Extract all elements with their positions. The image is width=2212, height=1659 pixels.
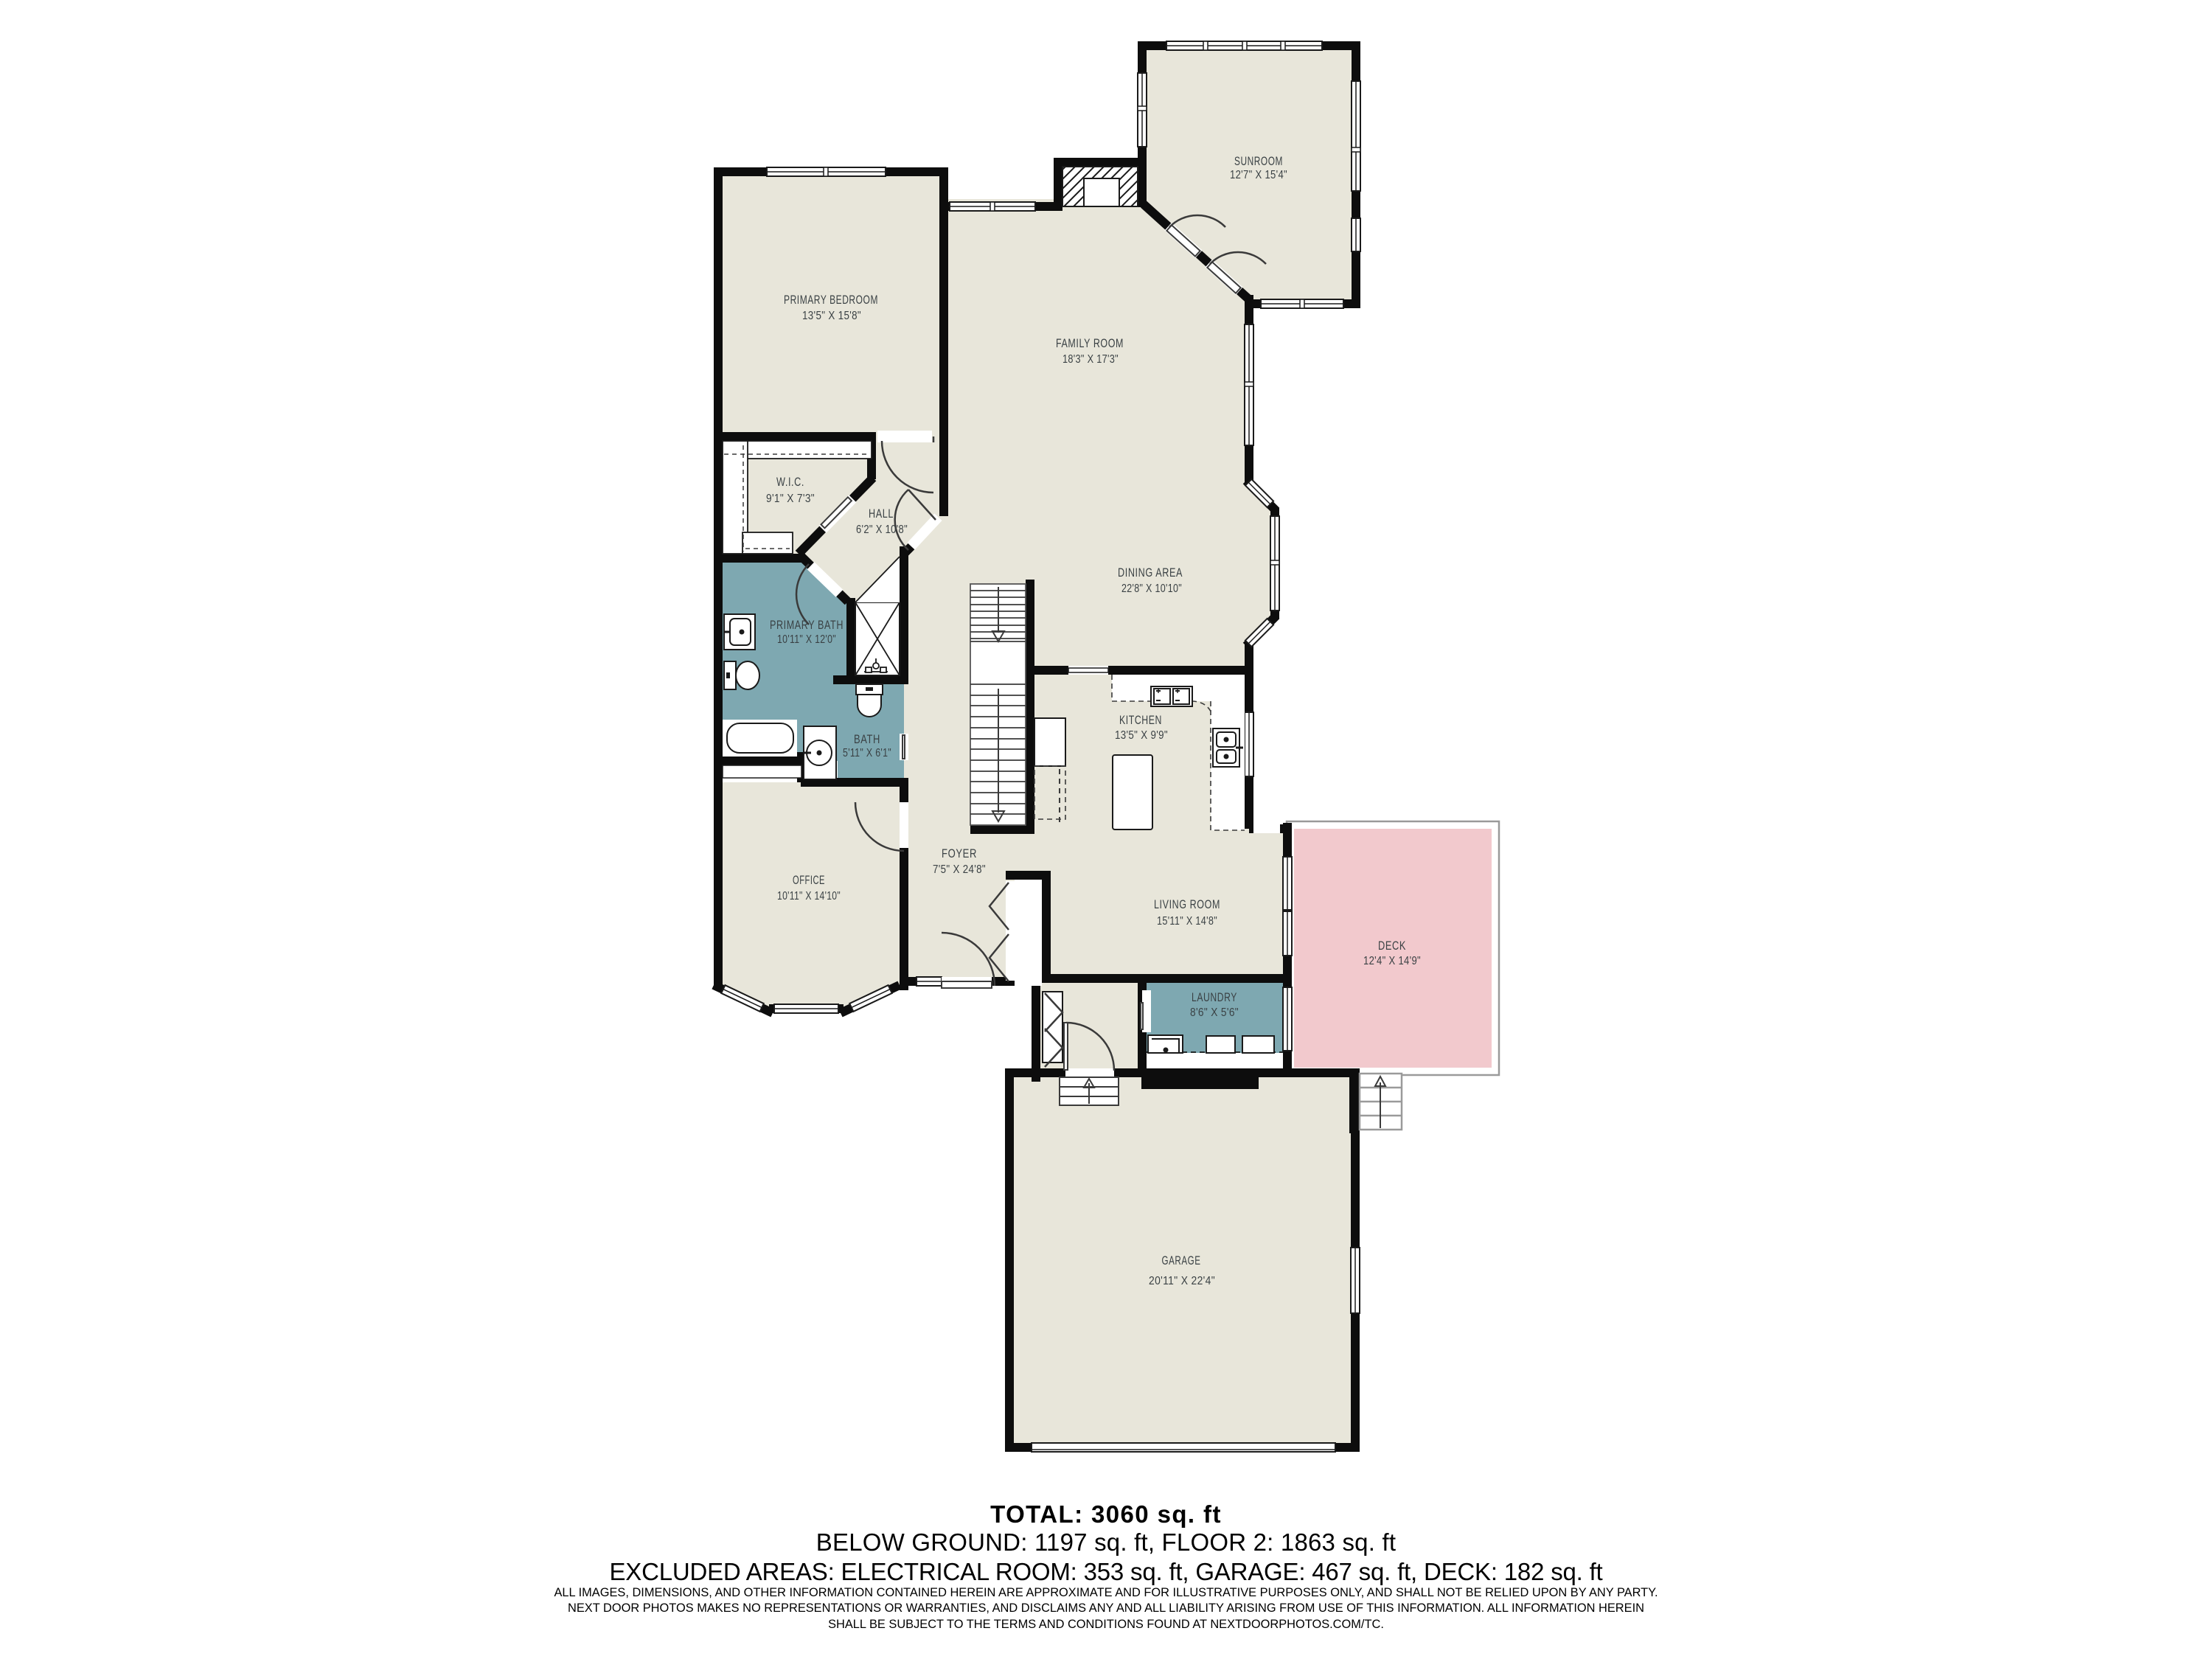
svg-text:KITCHEN: KITCHEN: [1119, 713, 1162, 727]
svg-text:10'11" X 12'0": 10'11" X 12'0": [777, 633, 836, 646]
svg-text:FOYER: FOYER: [942, 846, 977, 860]
svg-text:NEXT DOOR PHOTOS MAKES NO REPR: NEXT DOOR PHOTOS MAKES NO REPRESENTATION…: [568, 1601, 1644, 1615]
svg-text:13'5" X 9'9": 13'5" X 9'9": [1115, 729, 1168, 742]
svg-text:BATH: BATH: [854, 732, 880, 746]
svg-text:8'6" X 5'6": 8'6" X 5'6": [1190, 1006, 1239, 1019]
svg-text:SUNROOM: SUNROOM: [1234, 154, 1283, 168]
svg-text:EXCLUDED AREAS: ELECTRICAL ROO: EXCLUDED AREAS: ELECTRICAL ROOM: 353 sq.…: [609, 1558, 1602, 1585]
svg-text:W.I.C.: W.I.C.: [776, 475, 804, 489]
svg-text:9'1" X 7'3": 9'1" X 7'3": [766, 493, 815, 505]
svg-text:10'11" X 14'10": 10'11" X 14'10": [777, 890, 841, 902]
svg-text:HALL: HALL: [869, 507, 894, 521]
svg-text:7'5" X 24'8": 7'5" X 24'8": [933, 863, 986, 876]
svg-text:12'4" X 14'9": 12'4" X 14'9": [1363, 955, 1421, 967]
svg-text:DINING AREA: DINING AREA: [1118, 566, 1183, 580]
svg-text:13'5" X 15'8": 13'5" X 15'8": [802, 310, 861, 322]
svg-text:ALL IMAGES, DIMENSIONS, AND OT: ALL IMAGES, DIMENSIONS, AND OTHER INFORM…: [554, 1586, 1658, 1599]
svg-text:20'11" X 22'4": 20'11" X 22'4": [1149, 1275, 1215, 1287]
svg-text:DECK: DECK: [1378, 939, 1406, 953]
svg-text:18'3" X 17'3": 18'3" X 17'3": [1062, 353, 1119, 366]
svg-text:15'11" X 14'8": 15'11" X 14'8": [1157, 915, 1217, 928]
svg-text:22'8" X 10'10": 22'8" X 10'10": [1121, 582, 1182, 595]
svg-text:12'7" X 15'4": 12'7" X 15'4": [1230, 169, 1287, 181]
svg-text:5'11" X 6'1": 5'11" X 6'1": [843, 747, 891, 759]
svg-text:BELOW GROUND: 1197 sq. ft, FLO: BELOW GROUND: 1197 sq. ft, FLOOR 2: 1863…: [816, 1528, 1396, 1556]
svg-text:LAUNDRY: LAUNDRY: [1192, 990, 1237, 1004]
svg-text:SHALL BE SUBJECT TO THE TERMS: SHALL BE SUBJECT TO THE TERMS AND CONDIT…: [828, 1618, 1384, 1631]
svg-text:LIVING ROOM: LIVING ROOM: [1154, 897, 1220, 911]
svg-text:TOTAL: 3060 sq. ft: TOTAL: 3060 sq. ft: [990, 1500, 1222, 1528]
svg-text:FAMILY ROOM: FAMILY ROOM: [1056, 336, 1124, 350]
svg-text:PRIMARY BEDROOM: PRIMARY BEDROOM: [784, 293, 878, 307]
svg-text:OFFICE: OFFICE: [793, 873, 825, 887]
svg-text:PRIMARY BATH: PRIMARY BATH: [770, 618, 844, 632]
svg-text:GARAGE: GARAGE: [1162, 1253, 1201, 1267]
svg-text:6'2" X 10'8": 6'2" X 10'8": [856, 524, 908, 536]
